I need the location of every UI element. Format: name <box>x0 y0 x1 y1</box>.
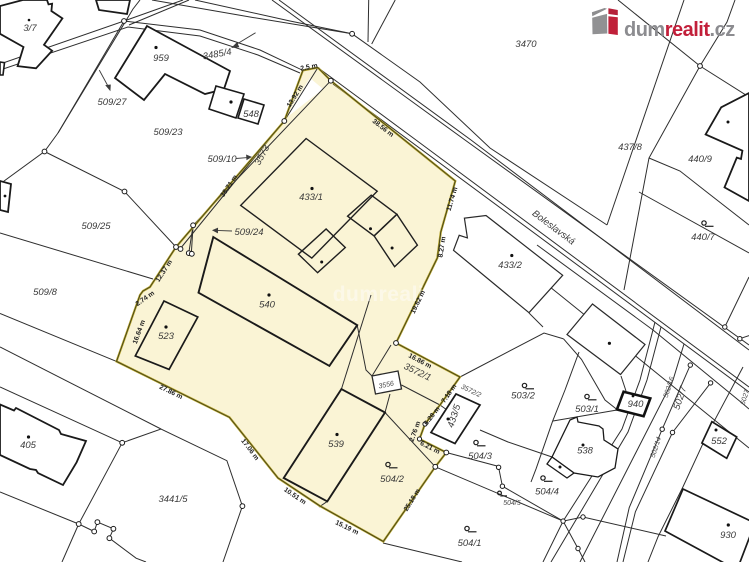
svg-text:405: 405 <box>20 440 37 451</box>
svg-text:509/24: 509/24 <box>234 227 263 238</box>
svg-text:3441/5: 3441/5 <box>158 494 188 505</box>
svg-text:504/1: 504/1 <box>458 538 482 549</box>
svg-text:552: 552 <box>711 436 728 447</box>
svg-text:538: 538 <box>577 446 594 457</box>
svg-text:503/2: 503/2 <box>511 391 535 402</box>
svg-text:959: 959 <box>153 53 170 64</box>
svg-text:509/10: 509/10 <box>207 154 237 165</box>
svg-text:440/9: 440/9 <box>688 154 712 165</box>
svg-text:509/23: 509/23 <box>153 127 183 138</box>
svg-text:504/3: 504/3 <box>468 451 492 462</box>
svg-text:509/27: 509/27 <box>97 97 127 108</box>
svg-text:523: 523 <box>158 331 175 342</box>
svg-text:440/7: 440/7 <box>691 232 715 243</box>
svg-text:504/5: 504/5 <box>503 500 521 507</box>
svg-text:540: 540 <box>259 300 276 311</box>
svg-text:437/8: 437/8 <box>618 142 642 153</box>
svg-text:504/4: 504/4 <box>535 487 559 498</box>
svg-text:503/1: 503/1 <box>575 404 599 415</box>
svg-text:509/8: 509/8 <box>33 287 57 298</box>
svg-text:433/1: 433/1 <box>299 192 323 203</box>
svg-text:3470: 3470 <box>515 39 537 50</box>
svg-text:504/2: 504/2 <box>380 474 404 485</box>
svg-text:3/7: 3/7 <box>23 23 37 34</box>
svg-text:930: 930 <box>720 530 737 541</box>
svg-text:433/2: 433/2 <box>498 260 522 271</box>
svg-text:dumrealit.cz: dumrealit.cz <box>624 19 735 41</box>
svg-text:539: 539 <box>328 439 345 450</box>
svg-text:dumrealit.cz: dumrealit.cz <box>333 283 462 306</box>
svg-text:509/25: 509/25 <box>81 221 111 232</box>
svg-text:548: 548 <box>243 109 260 120</box>
svg-text:940: 940 <box>628 399 645 410</box>
